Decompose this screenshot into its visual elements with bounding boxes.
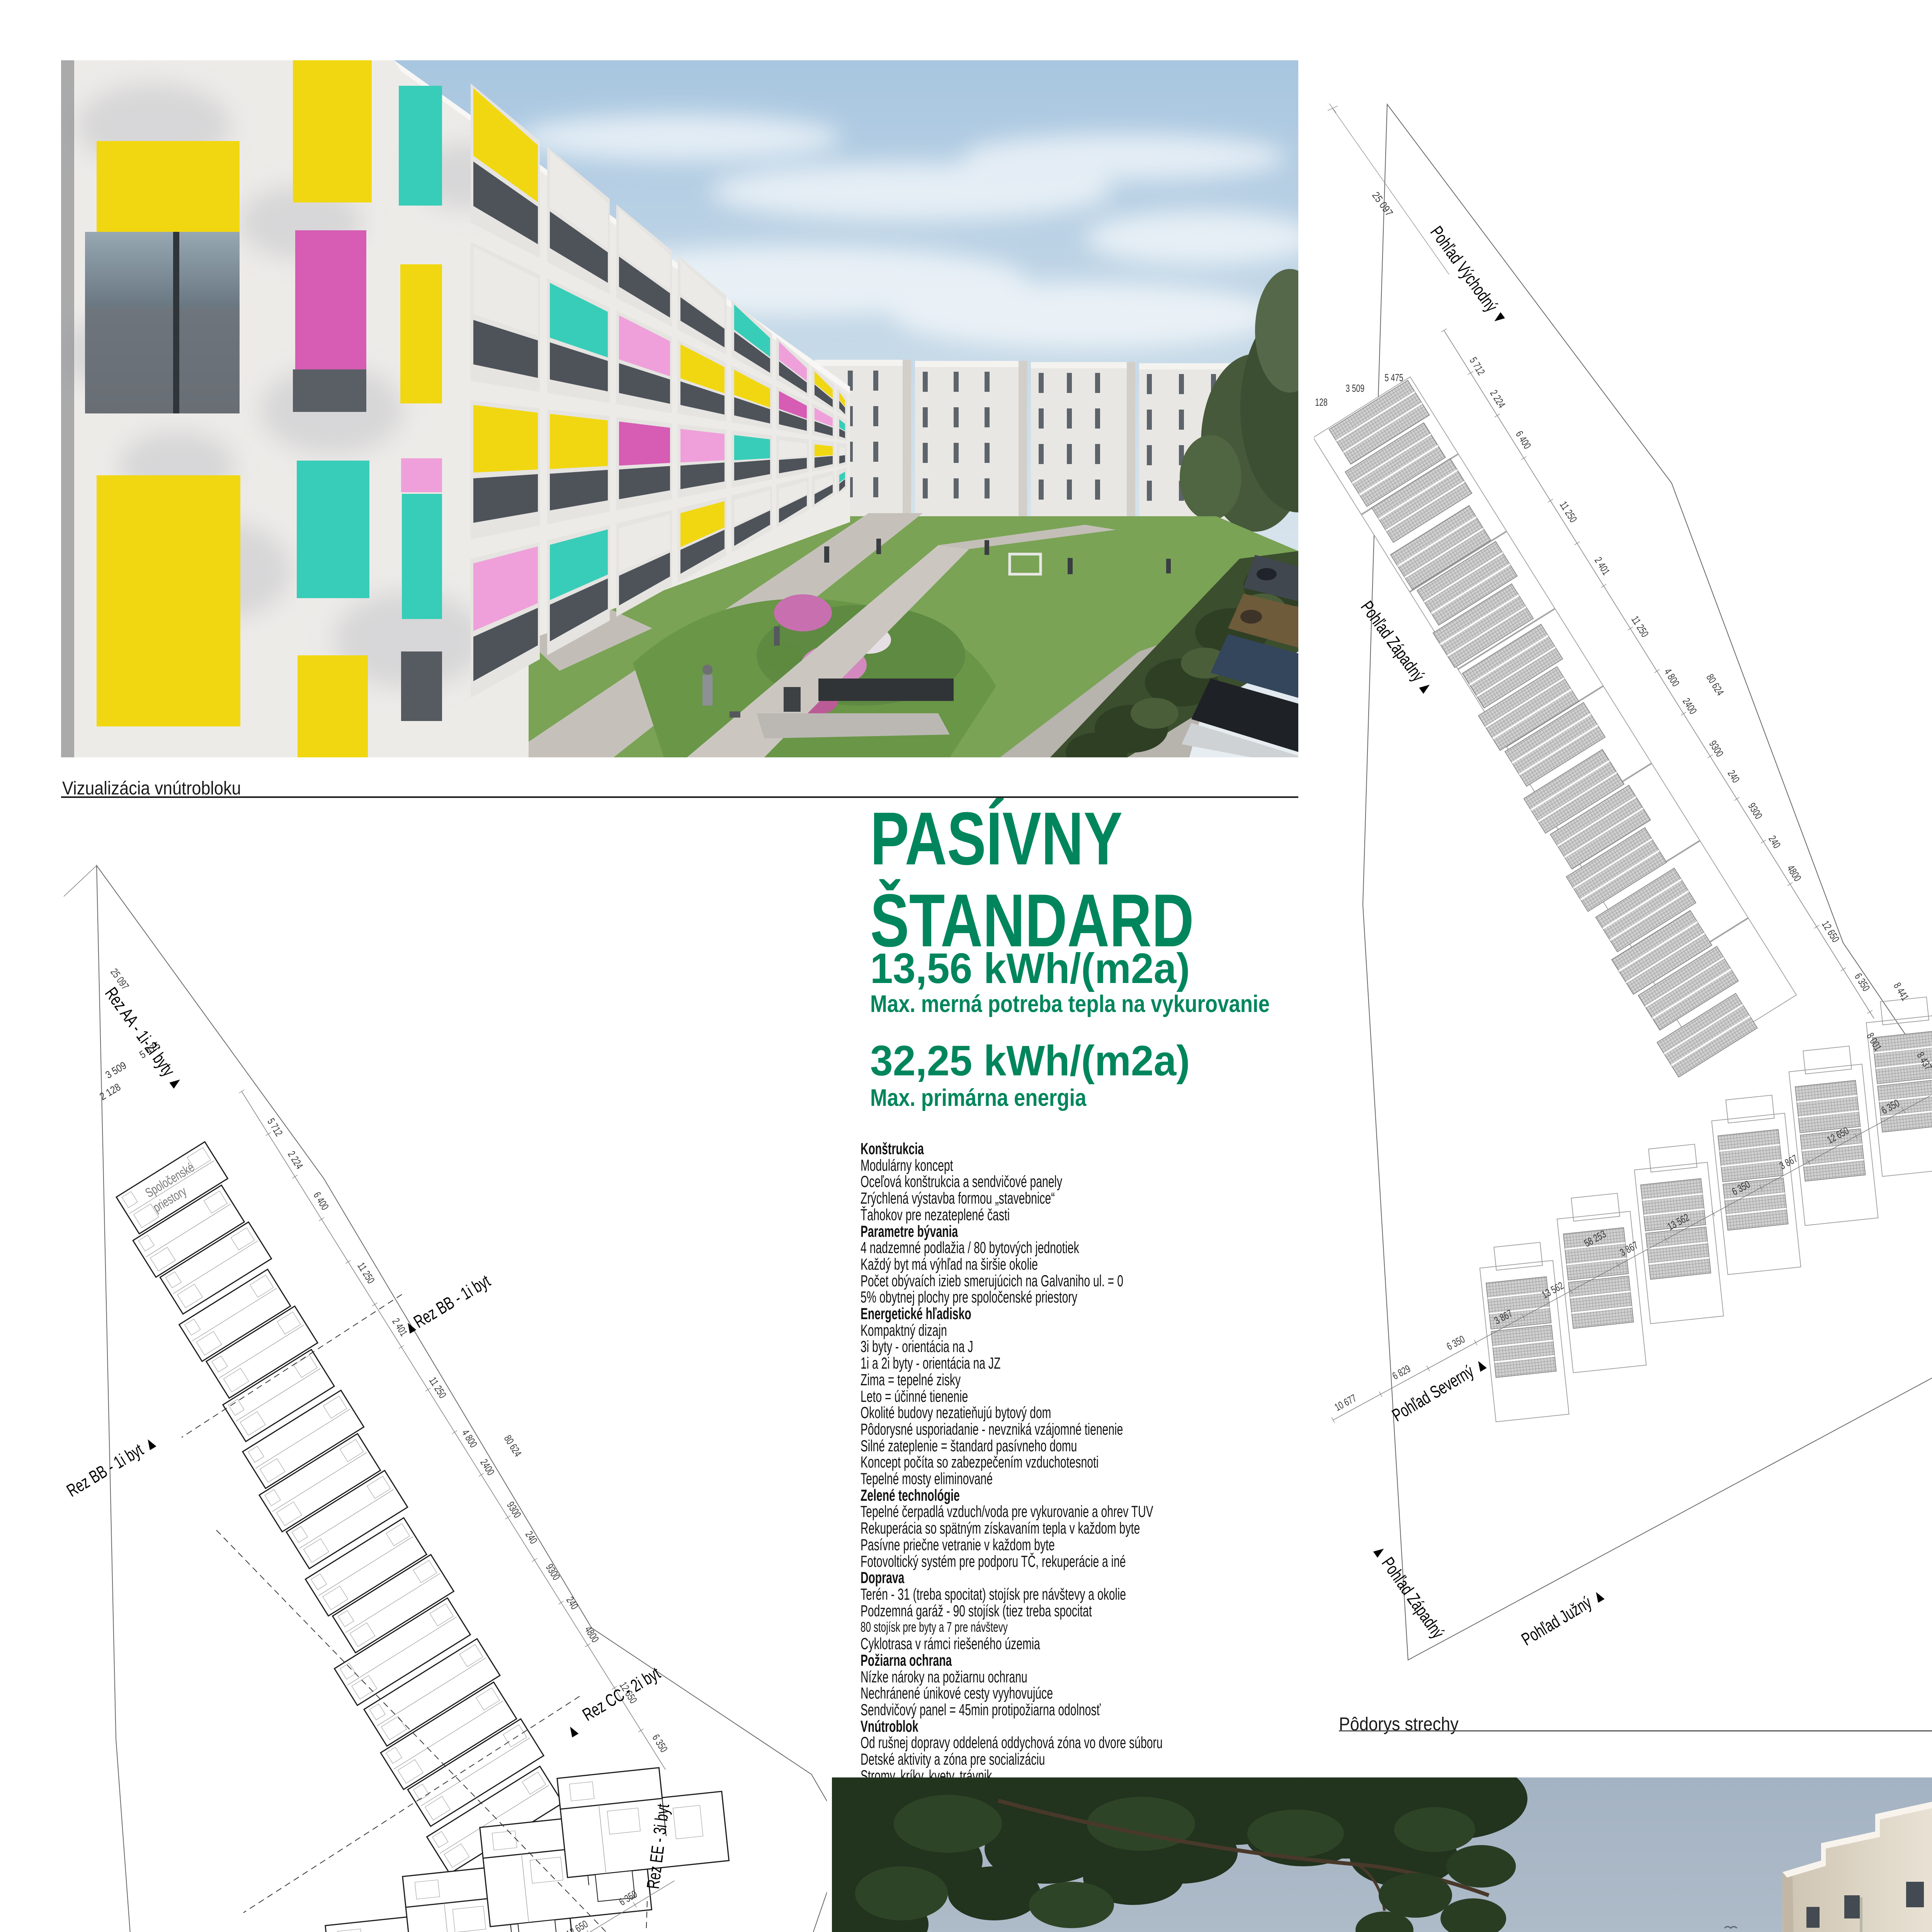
svg-text:2 401: 2 401	[1592, 555, 1612, 577]
svg-text:11 250: 11 250	[1558, 499, 1579, 524]
svg-text:11 250: 11 250	[427, 1375, 449, 1400]
svg-text:6 400: 6 400	[311, 1190, 331, 1212]
svg-text:11 250: 11 250	[355, 1260, 377, 1286]
svg-text:2 224: 2 224	[1488, 388, 1508, 410]
svg-text:6 350: 6 350	[1852, 971, 1872, 993]
svg-text:5 712: 5 712	[265, 1116, 285, 1138]
svg-text:Pohľad Južný ▲: Pohľad Južný ▲	[1518, 1584, 1609, 1650]
svg-text:▲Rez BB - 1i byt: ▲Rez BB - 1i byt	[400, 1271, 493, 1338]
svg-text:2 128: 2 128	[1314, 396, 1328, 408]
svg-text:10 677: 10 677	[1333, 1392, 1358, 1413]
svg-text:▲: ▲	[562, 1719, 583, 1742]
svg-text:12 650: 12 650	[1820, 919, 1842, 944]
svg-text:6 350: 6 350	[650, 1732, 670, 1754]
svg-text:240: 240	[523, 1529, 539, 1546]
svg-text:3 509: 3 509	[1346, 383, 1365, 394]
svg-text:5 475: 5 475	[1384, 372, 1403, 383]
svg-text:240: 240	[1725, 768, 1742, 785]
svg-text:3 509: 3 509	[104, 1060, 129, 1081]
svg-text:80 624: 80 624	[502, 1433, 524, 1459]
svg-text:240: 240	[1766, 833, 1782, 850]
svg-text:Pohľad Východný ▼: Pohľad Východný ▼	[1427, 223, 1511, 328]
svg-text:4 800: 4 800	[1662, 667, 1682, 689]
svg-text:8 441: 8 441	[1891, 981, 1911, 1003]
svg-text:80 624: 80 624	[1704, 672, 1726, 697]
svg-text:Rez CC - 2i byt: Rez CC - 2i byt	[579, 1663, 663, 1725]
svg-text:▲ Pohľad Západný: ▲ Pohľad Západný	[1369, 1541, 1448, 1642]
svg-text:2 224: 2 224	[286, 1149, 305, 1171]
svg-text:11 250: 11 250	[1629, 614, 1651, 639]
svg-text:6 400: 6 400	[1514, 429, 1533, 451]
svg-text:5 712: 5 712	[1468, 355, 1487, 377]
svg-text:240: 240	[564, 1595, 580, 1611]
svg-text:4 800: 4 800	[460, 1427, 480, 1449]
svg-text:25 097: 25 097	[1370, 190, 1395, 219]
svg-text:Rez BB - 1i byt ▲: Rez BB - 1i byt ▲	[63, 1432, 160, 1501]
